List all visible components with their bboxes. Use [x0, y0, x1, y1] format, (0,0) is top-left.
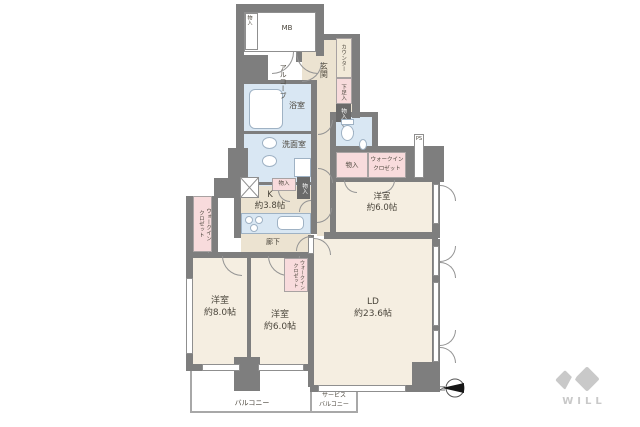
casement-arc	[440, 347, 456, 363]
washing-machine	[294, 158, 311, 177]
wall	[236, 4, 324, 12]
stove-burner	[250, 224, 258, 232]
compass-n-label: N	[439, 386, 447, 391]
trunk-label: 物入	[246, 15, 253, 25]
window	[433, 330, 439, 362]
ld-size: 約23.6帖	[340, 309, 406, 321]
kitchen-sink	[277, 216, 304, 230]
wic-mid-label: ウォークイン クロゼット	[287, 260, 305, 290]
wic-right-line1: ウォークイン	[366, 156, 408, 165]
wall	[236, 55, 268, 82]
bathroom-label: 浴室	[277, 101, 317, 111]
entrance-storage-label: 物入	[339, 106, 346, 121]
wall	[228, 148, 248, 180]
will-logo: WILL	[552, 366, 616, 412]
wic-left-label: ウォークイン クロゼット	[194, 200, 211, 248]
washbasin	[262, 155, 277, 167]
stove-burner	[245, 216, 253, 224]
wic-left-line1: ウォークイン	[204, 200, 211, 248]
floor-plan: MB 物入 アルコーブ 玄関 カウンター 下足入 物入 浴室 洗面室 物入 ウォ…	[0, 0, 640, 427]
kitchen-name: K	[240, 190, 300, 201]
service-balcony-line1: サービス	[310, 391, 358, 400]
window	[202, 364, 240, 371]
mb-label: MB	[260, 24, 314, 33]
window	[186, 278, 193, 354]
toilet-storage-label: 物入	[336, 161, 368, 169]
compass-icon: N	[436, 374, 470, 402]
wall	[243, 131, 315, 134]
wic-right-line2: クロゼット	[366, 165, 408, 174]
window	[433, 184, 439, 224]
service-balcony-label: サービス バルコニー	[310, 391, 358, 409]
wic-right-label: ウォークイン クロゼット	[366, 156, 408, 174]
wall	[212, 196, 218, 254]
casement-arc	[440, 185, 456, 201]
wic-left-line2: クロゼット	[197, 200, 204, 248]
corridor-label: 廊下	[258, 238, 288, 247]
wall	[311, 80, 317, 188]
wall	[352, 34, 360, 118]
wall	[316, 4, 324, 56]
window	[258, 364, 304, 371]
bedroom-sw-name: 洋室	[194, 296, 246, 308]
washroom-label: 洗面室	[272, 140, 316, 150]
logo-text: WILL	[552, 396, 616, 407]
bedroom-ne-size: 約6.0帖	[352, 203, 412, 214]
balcony-label: バルコニー	[222, 399, 282, 408]
casement-arc	[440, 246, 456, 262]
bedroom-s-label: 洋室 約6.0帖	[252, 310, 308, 333]
stove-burner	[255, 216, 263, 224]
wall	[247, 258, 251, 366]
bedroom-sw-size: 約8.0帖	[194, 308, 246, 320]
kitchen-storage-a-label: 物入	[272, 181, 296, 188]
kitchen-size: 約3.8帖	[240, 201, 300, 212]
wall	[234, 357, 260, 391]
casement-arc	[440, 262, 456, 278]
wall	[308, 235, 314, 387]
counter-label: カウンター	[339, 40, 346, 76]
window	[433, 246, 439, 276]
toilet-sink	[359, 139, 367, 150]
wall	[324, 232, 438, 239]
toilet-bowl	[341, 125, 354, 141]
ps-label: PS	[411, 136, 427, 143]
bedroom-s-size: 約6.0帖	[252, 322, 308, 334]
wic-mid-line2: クロゼット	[292, 260, 299, 290]
bedroom-ne-name: 洋室	[352, 192, 412, 203]
kitchen-storage-b-label: 物入	[300, 179, 307, 197]
bedroom-ne-label: 洋室 約6.0帖	[352, 192, 412, 214]
casement-arc	[440, 330, 456, 346]
ld-name: LD	[340, 297, 406, 309]
entrance-label: 玄関	[318, 50, 328, 90]
wic-mid-line1: ウォークイン	[299, 260, 306, 290]
shoe-box-label: 下足入	[339, 81, 346, 103]
window	[433, 282, 439, 326]
bedroom-sw-label: 洋室 約8.0帖	[194, 296, 246, 319]
bedroom-s-name: 洋室	[252, 310, 308, 322]
kitchen-label: K 約3.8帖	[240, 190, 300, 212]
ld-label: LD 約23.6帖	[340, 297, 406, 320]
wall	[404, 148, 444, 178]
service-balcony-line2: バルコニー	[310, 400, 358, 409]
